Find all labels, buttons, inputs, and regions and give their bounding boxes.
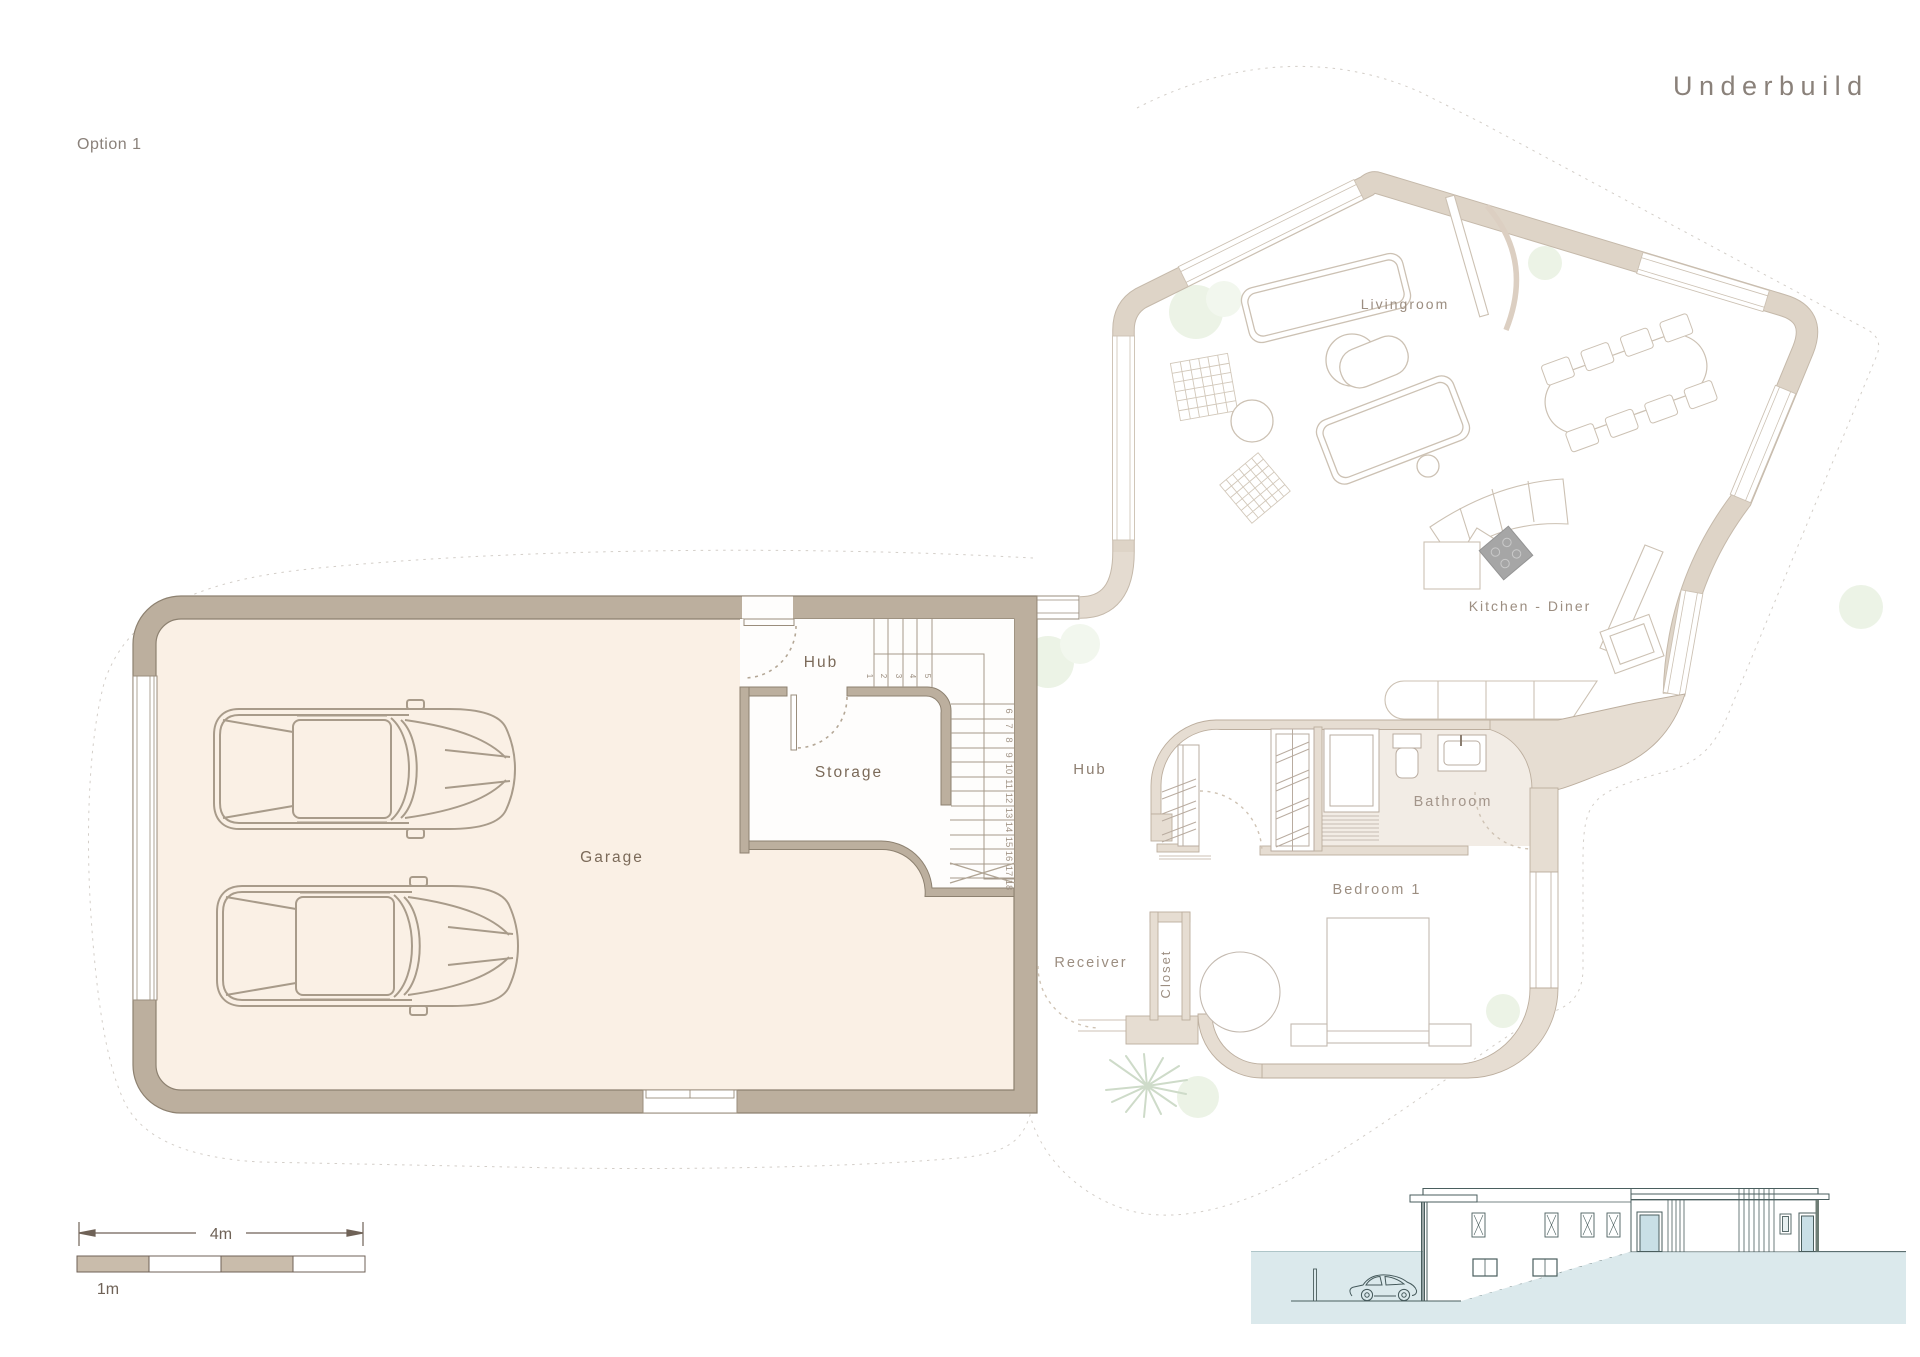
svg-text:5: 5 — [923, 674, 932, 679]
svg-text:17: 17 — [1003, 866, 1014, 877]
svg-text:11: 11 — [1003, 779, 1014, 789]
svg-text:14: 14 — [1003, 822, 1014, 833]
svg-text:Livingroom: Livingroom — [1361, 296, 1449, 312]
svg-text:Closet: Closet — [1158, 950, 1173, 999]
svg-text:Option 1: Option 1 — [77, 136, 141, 153]
svg-text:Hub: Hub — [1073, 761, 1107, 778]
svg-text:Garage: Garage — [580, 849, 644, 866]
svg-text:7: 7 — [1003, 723, 1014, 728]
svg-text:16: 16 — [1003, 851, 1014, 862]
svg-text:Underbuild: Underbuild — [1673, 71, 1869, 101]
svg-text:Kitchen - Diner: Kitchen - Diner — [1469, 598, 1592, 614]
svg-text:Bedroom 1: Bedroom 1 — [1333, 882, 1422, 898]
svg-text:8: 8 — [1003, 737, 1014, 742]
svg-text:4: 4 — [908, 674, 917, 679]
svg-text:12: 12 — [1003, 793, 1014, 804]
svg-text:13: 13 — [1003, 808, 1014, 819]
svg-text:3: 3 — [894, 674, 903, 679]
svg-text:2: 2 — [879, 674, 888, 679]
svg-text:Receiver: Receiver — [1054, 955, 1127, 971]
svg-text:Bathroom: Bathroom — [1414, 794, 1493, 810]
svg-text:18: 18 — [1003, 880, 1014, 891]
svg-text:1: 1 — [865, 674, 874, 679]
svg-text:6: 6 — [1003, 708, 1014, 713]
svg-text:9: 9 — [1003, 752, 1014, 757]
svg-text:Hub: Hub — [804, 654, 838, 671]
svg-text:10: 10 — [1003, 764, 1014, 775]
svg-text:15: 15 — [1003, 837, 1014, 848]
svg-text:4m: 4m — [210, 1226, 232, 1243]
svg-text:Storage: Storage — [815, 764, 883, 781]
svg-text:1m: 1m — [97, 1281, 119, 1298]
